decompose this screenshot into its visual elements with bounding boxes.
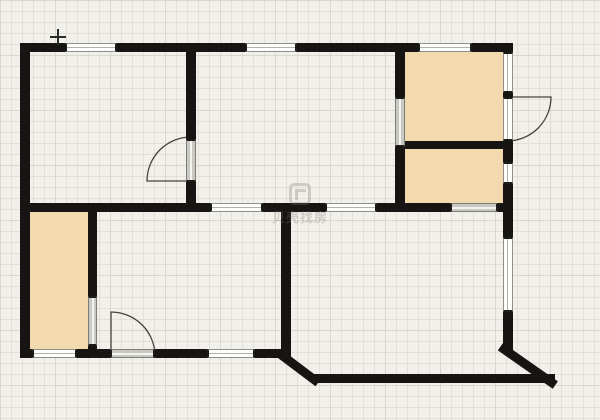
window-marker[interactable] bbox=[503, 162, 513, 184]
door-threshold[interactable] bbox=[186, 139, 196, 182]
room-fill[interactable] bbox=[405, 149, 503, 203]
window-marker[interactable] bbox=[418, 43, 472, 52]
wall[interactable] bbox=[20, 43, 30, 358]
crosshair-vertical-line bbox=[57, 29, 59, 45]
window-marker[interactable] bbox=[65, 43, 117, 52]
room-fill[interactable] bbox=[405, 52, 503, 141]
door-threshold[interactable] bbox=[395, 97, 405, 147]
wall[interactable] bbox=[281, 203, 291, 358]
door-threshold[interactable] bbox=[88, 296, 97, 346]
wall-diagonal[interactable] bbox=[276, 349, 321, 386]
door-swing[interactable] bbox=[507, 97, 551, 141]
wall[interactable] bbox=[186, 52, 196, 212]
watermark-text: 贝壳找房 bbox=[260, 207, 340, 226]
window-marker[interactable] bbox=[503, 237, 513, 312]
window-marker[interactable] bbox=[210, 203, 263, 212]
window-marker[interactable] bbox=[245, 43, 297, 52]
window-marker[interactable] bbox=[207, 349, 255, 358]
floorplan-canvas[interactable]: 贝壳找房 bbox=[0, 0, 600, 420]
door-swing[interactable] bbox=[147, 137, 191, 181]
wall[interactable] bbox=[395, 141, 513, 149]
door-threshold[interactable] bbox=[450, 203, 498, 212]
window-marker[interactable] bbox=[503, 52, 513, 93]
door-threshold[interactable] bbox=[110, 349, 155, 358]
window-marker[interactable] bbox=[32, 349, 77, 358]
window-marker[interactable] bbox=[503, 97, 513, 141]
watermark: 贝壳找房 bbox=[260, 183, 340, 226]
wall[interactable] bbox=[312, 374, 555, 383]
room-fill[interactable] bbox=[30, 210, 88, 349]
beike-logo-icon bbox=[289, 183, 311, 205]
